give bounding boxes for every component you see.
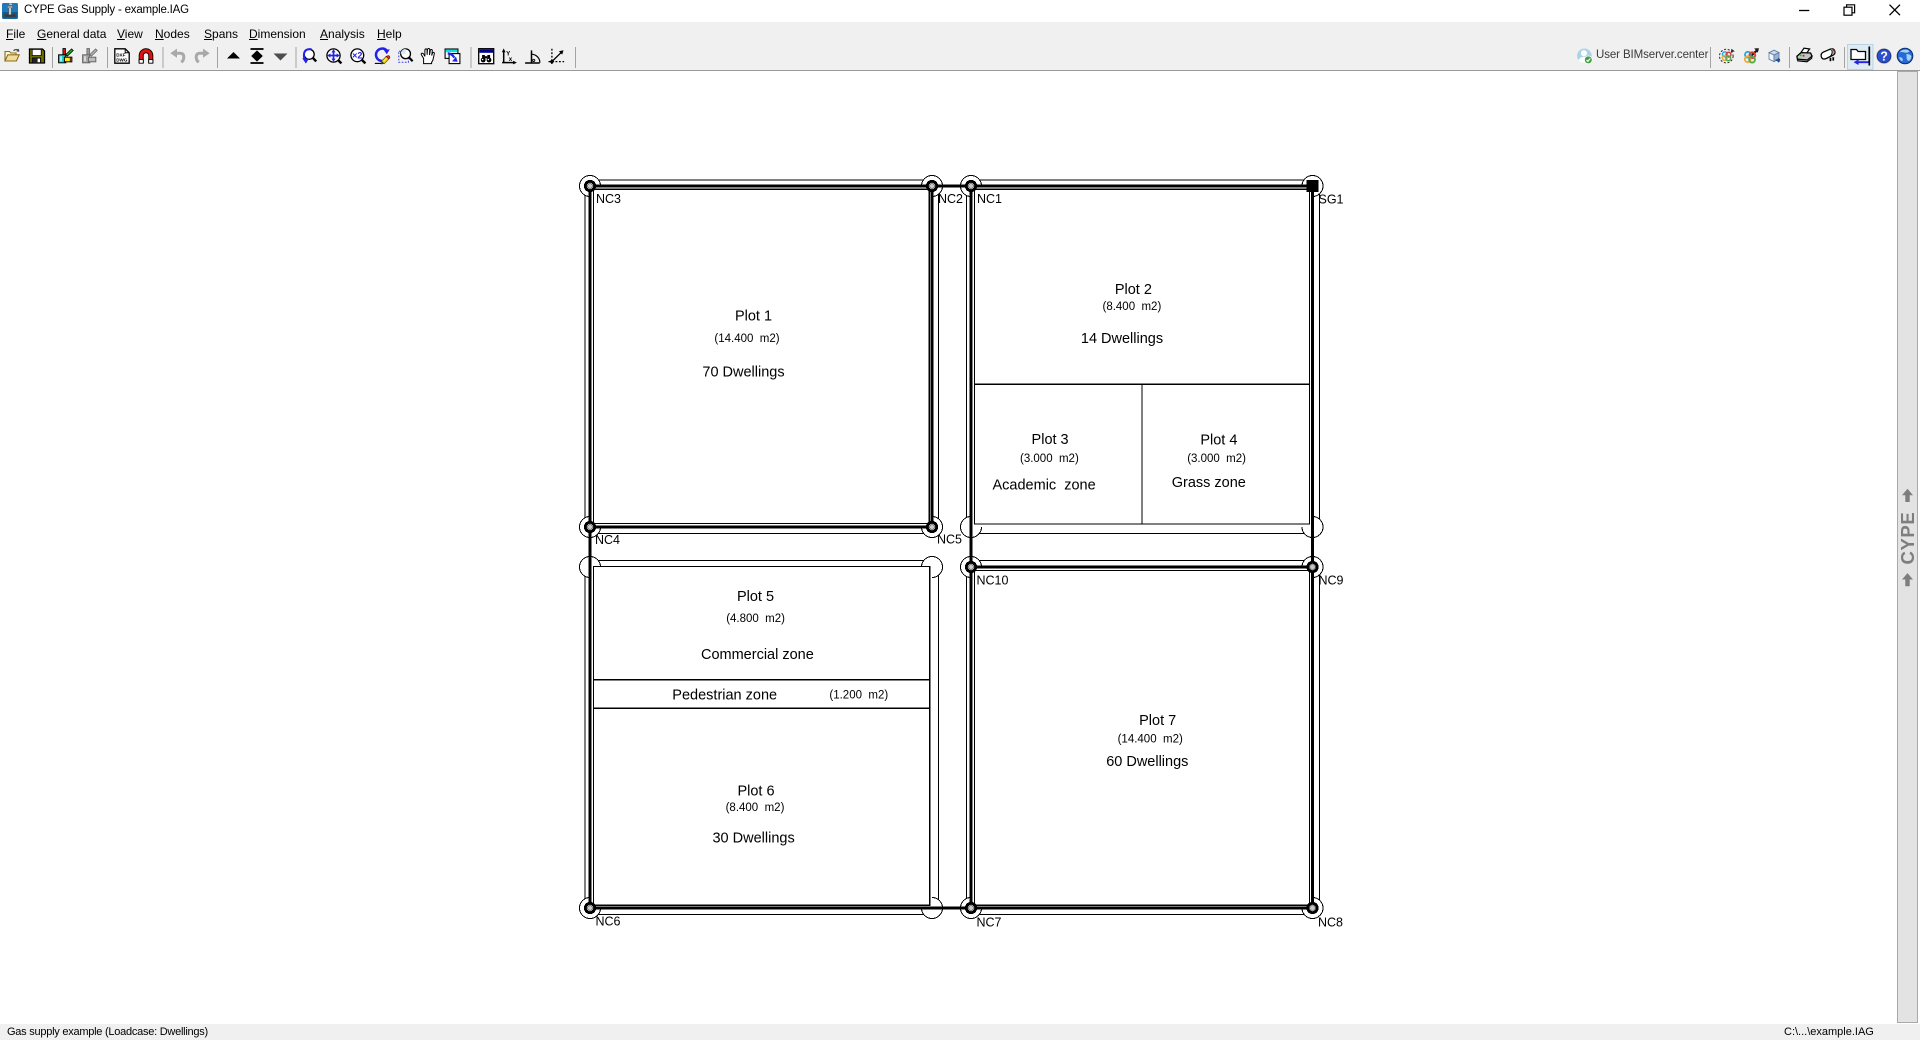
svg-text:14 Dwellings: 14 Dwellings [1081,331,1163,347]
svg-text:x: x [509,56,513,63]
svg-text:NC1: NC1 [977,192,1002,206]
svg-text:(3.000 m2): (3.000 m2) [1187,453,1246,465]
svg-text:×2: ×2 [352,51,362,61]
svg-text:CYPE: CYPE [1897,512,1918,565]
svg-text:(14.400 m2): (14.400 m2) [714,333,779,345]
svg-text:NC5: NC5 [937,533,962,547]
svg-text:Commercial zone: Commercial zone [701,647,814,663]
svg-text:Plot 7: Plot 7 [1139,713,1176,729]
svg-text:(14.400 m2): (14.400 m2) [1118,734,1183,746]
svg-text:NC10: NC10 [977,574,1009,588]
svg-text:Plot 3: Plot 3 [1032,432,1069,448]
svg-text:(3.000 m2): (3.000 m2) [1020,453,1079,465]
svg-text:70 Dwellings: 70 Dwellings [702,365,784,381]
svg-text:(4.800 m2): (4.800 m2) [726,613,785,625]
svg-text:SG1: SG1 [1319,193,1344,207]
svg-text:Plot 1: Plot 1 [735,309,772,325]
svg-text:Grass zone: Grass zone [1172,475,1246,491]
svg-text:NC3: NC3 [596,192,621,206]
svg-text:NC8: NC8 [1318,916,1343,930]
svg-text:(8.400 m2): (8.400 m2) [726,802,785,814]
svg-text:Plot 6: Plot 6 [737,784,774,800]
svg-text:Academic zone: Academic zone [993,478,1096,494]
svg-text:(1.200 m2): (1.200 m2) [829,689,888,701]
svg-text:DWG: DWG [116,58,128,63]
svg-text:NC7: NC7 [977,916,1002,930]
svg-text:NC2: NC2 [938,192,963,206]
svg-text:Pedestrian zone: Pedestrian zone [672,687,777,703]
svg-text:NC6: NC6 [596,915,621,929]
svg-text:Plot 5: Plot 5 [737,589,774,605]
svg-text:(8.400 m2): (8.400 m2) [1102,301,1161,313]
svg-text:60 Dwellings: 60 Dwellings [1106,754,1188,770]
svg-text:Plot 2: Plot 2 [1115,282,1152,298]
svg-text:NC4: NC4 [595,533,620,547]
svg-text:Plot 4: Plot 4 [1200,432,1237,448]
svg-text:?: ? [1880,50,1888,64]
svg-text:30 Dwellings: 30 Dwellings [712,831,794,847]
svg-text:NC9: NC9 [1319,574,1344,588]
